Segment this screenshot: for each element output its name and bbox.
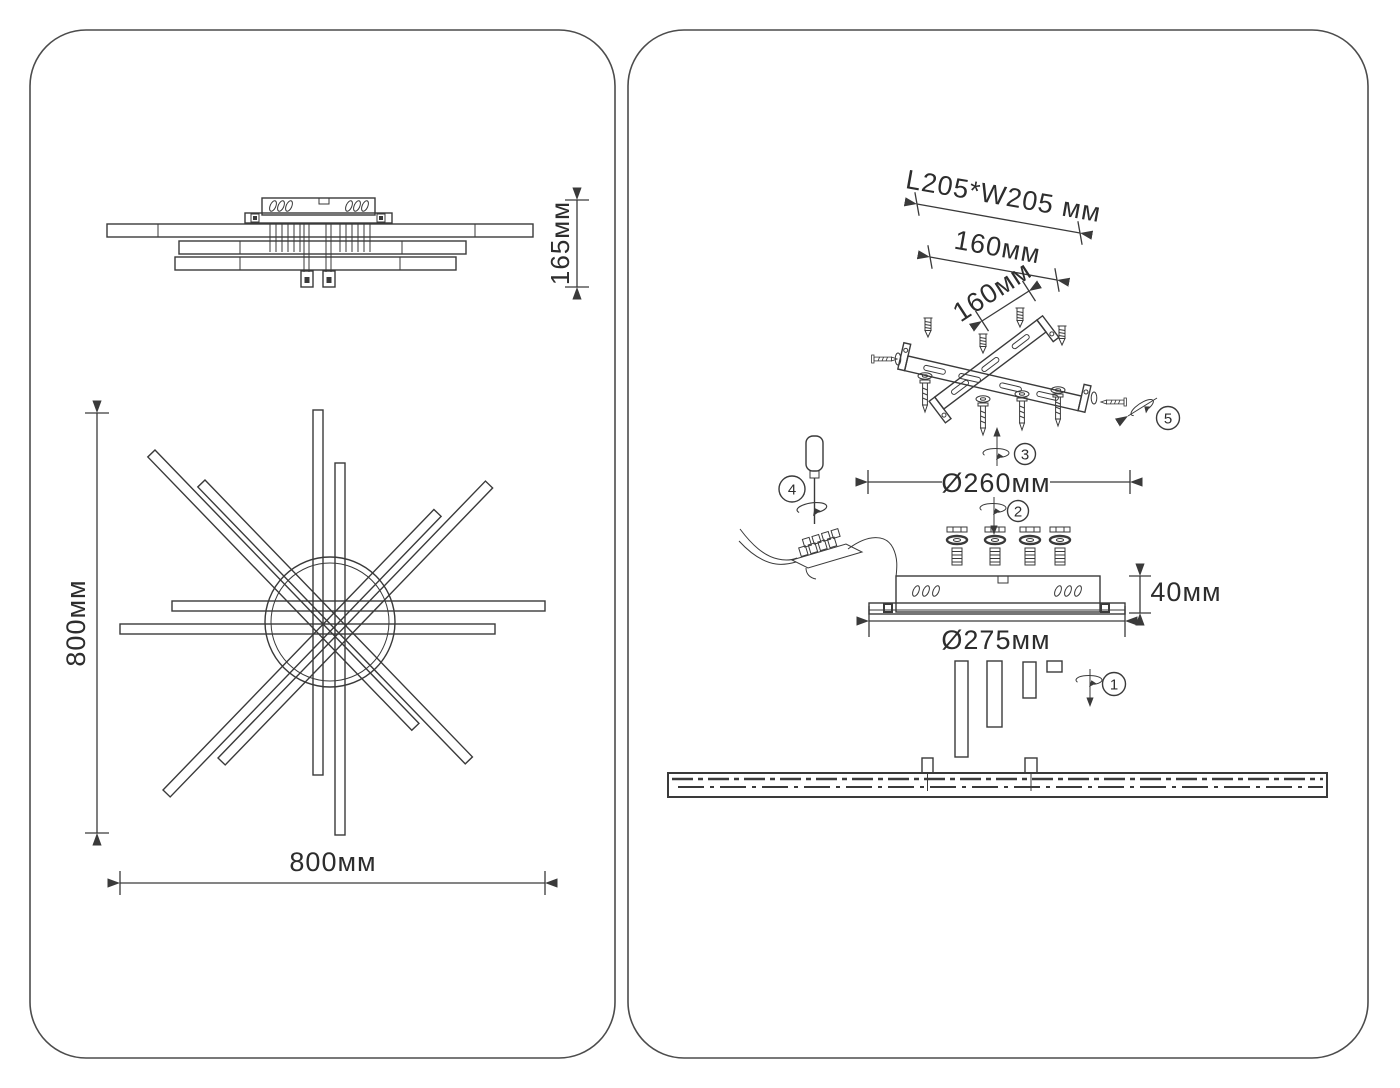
dim-canopy-height: 40мм <box>1129 576 1222 613</box>
bolt-circle-label: Ø260мм <box>941 468 1050 498</box>
wire <box>740 529 797 560</box>
plate-tab-icon <box>884 604 892 612</box>
svg-text:1: 1 <box>1110 677 1118 694</box>
mount-clip-icon <box>993 576 1013 583</box>
wire <box>848 538 897 577</box>
mounting-bracket <box>872 308 1157 435</box>
top-view <box>120 410 545 835</box>
plate-tab-icon <box>1101 604 1109 612</box>
vent-slots-icon <box>911 585 1083 598</box>
spacer-parts <box>955 661 1062 757</box>
screw-down-icon <box>980 497 1006 535</box>
step-badge-2: 2 <box>1008 501 1029 522</box>
step-badge-3: 3 <box>1015 444 1036 465</box>
installation-drawing-page: 165мм 800мм <box>0 0 1400 1088</box>
suspension-rods <box>270 223 370 272</box>
screw-up-icon <box>983 427 1009 466</box>
top-view-height-label: 800мм <box>61 579 91 666</box>
terminal-block <box>739 529 897 579</box>
bar-tab-icon <box>1025 758 1037 773</box>
led-bar <box>668 758 1327 797</box>
side-view <box>107 198 533 287</box>
wire <box>739 541 796 564</box>
svg-text:3: 3 <box>1021 447 1029 464</box>
dim-width-800: 800мм <box>120 847 545 895</box>
led-bars-side <box>107 224 533 270</box>
dim-bolt-circle: Ø260мм <box>868 468 1130 498</box>
canopy-height-label: 40мм <box>1150 577 1221 607</box>
panel-overall-dimensions: 165мм 800мм <box>30 30 615 1058</box>
hanging-connector-icon <box>301 271 335 287</box>
step-badge-4: 4 <box>779 476 805 502</box>
wire <box>806 568 816 579</box>
screw-down-icon <box>1076 669 1102 707</box>
canopy-diameter-label: Ø275мм <box>941 625 1050 655</box>
svg-text:2: 2 <box>1014 504 1022 521</box>
fastener-set-icon <box>947 527 1070 565</box>
turn-direction-icon <box>1128 397 1157 421</box>
dim-height-800: 800мм <box>61 413 109 833</box>
bracket-outer-label: L205*W205 мм <box>904 164 1104 228</box>
step-badge-5: 5 <box>1157 407 1180 430</box>
top-view-width-label: 800мм <box>289 847 376 877</box>
mount-clip-icon <box>311 198 337 204</box>
svg-text:5: 5 <box>1164 411 1172 428</box>
dim-height-165: 165мм <box>545 200 589 287</box>
step-badge-1: 1 <box>1103 673 1126 696</box>
star-bars <box>120 410 545 835</box>
side-washer-icon <box>1091 392 1097 404</box>
side-height-label: 165мм <box>545 201 575 285</box>
bar-tab-icon <box>922 758 933 773</box>
drawing-canvas: 165мм 800мм <box>0 0 1400 1088</box>
panel-assembly-exploded: L205*W205 мм 160мм 160мм <box>628 30 1368 1058</box>
bracket-spacing-label: 160мм <box>952 225 1043 270</box>
canopy <box>869 576 1125 614</box>
svg-text:4: 4 <box>788 482 796 499</box>
